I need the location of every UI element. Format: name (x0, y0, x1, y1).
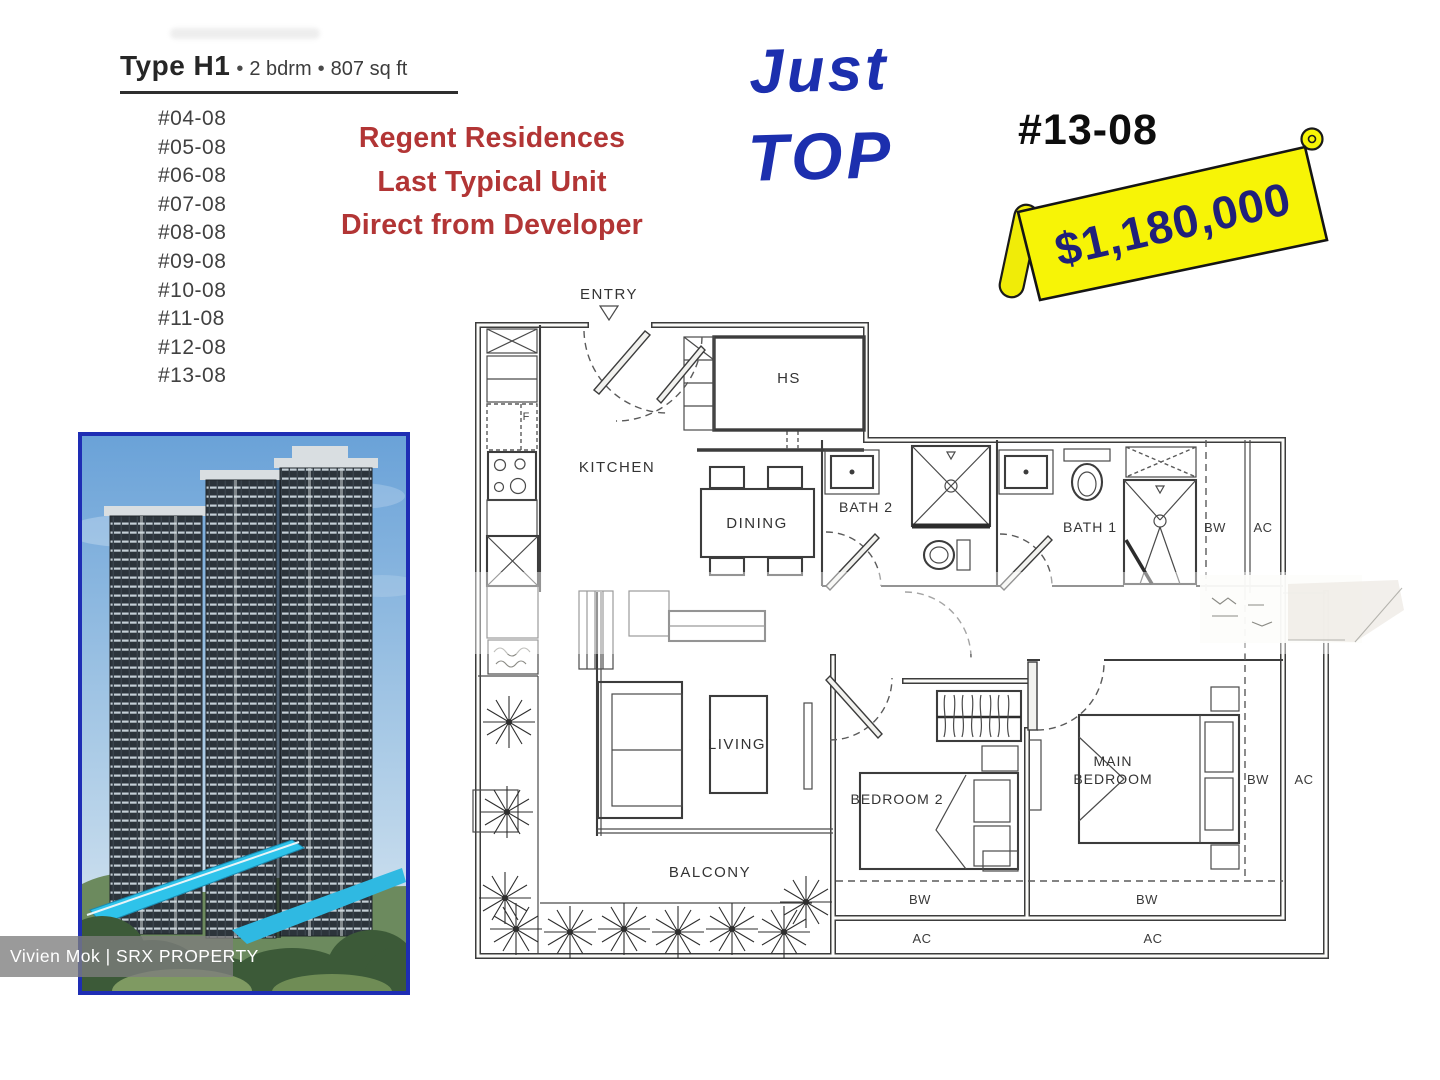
agent-watermark: Vivien Mok | SRX PROPERTY (0, 936, 233, 977)
floor-plan: ENTRY HS KITCHEN DINING BATH 2 BATH 1 BW… (468, 278, 1420, 1022)
label-bath1: BATH 1 (1063, 519, 1117, 535)
unit-list-item: #12-08 (158, 334, 226, 363)
unit-list-item: #09-08 (158, 248, 226, 277)
label-fridge: F (523, 411, 530, 423)
bullet-separator: • (318, 58, 325, 80)
promo-line-unit: Last Typical Unit (318, 161, 666, 205)
living-furniture (598, 682, 812, 818)
unit-number-list: #04-08 #05-08 #06-08 #07-08 #08-08 #09-0… (158, 105, 226, 391)
label-ac: AC (1143, 931, 1162, 946)
handwritten-just: Just (720, 25, 918, 116)
tower-left (104, 506, 208, 934)
tower-right (274, 446, 378, 938)
unit-list-item: #05-08 (158, 134, 226, 163)
label-living: LIVING (708, 736, 766, 753)
bedroom-count: 2 bdrm (249, 58, 311, 80)
handwritten-note: Just TOP (720, 25, 920, 200)
promo-line-developer: Direct from Developer (318, 204, 666, 248)
label-balcony: BALCONY (669, 864, 751, 881)
balcony-planting (473, 696, 832, 958)
building-photo (78, 432, 410, 995)
unit-list-item: #11-08 (158, 305, 226, 334)
label-bw: BW (1204, 520, 1226, 535)
label-ac: AC (912, 931, 931, 946)
promo-text: Regent Residences Last Typical Unit Dire… (318, 117, 666, 248)
label-dining: DINING (726, 515, 788, 532)
condo-towers-illustration (82, 436, 406, 991)
label-bedroom2: BEDROOM 2 (850, 791, 943, 807)
shower-stall (1124, 480, 1196, 584)
label-ac: AC (1294, 772, 1313, 787)
main-bedroom-furniture (1028, 662, 1239, 869)
floor-area: 807 sq ft (331, 58, 408, 80)
label-ac: AC (1253, 520, 1272, 535)
scan-artifact (170, 28, 320, 39)
unit-list-item: #06-08 (158, 162, 226, 191)
unit-list-item: #04-08 (158, 105, 226, 134)
bath2-fixtures (825, 446, 990, 590)
label-main-bedroom-1: MAIN (1094, 753, 1133, 769)
entry-arrow-icon (600, 306, 618, 320)
unit-list-item: #07-08 (158, 191, 226, 220)
label-entry: ENTRY (580, 286, 638, 303)
bullet-separator: • (236, 58, 243, 80)
label-bath2: BATH 2 (839, 499, 893, 515)
bed (860, 773, 1018, 869)
unit-list-item: #13-08 (158, 362, 226, 391)
label-kitchen: KITCHEN (579, 459, 655, 476)
unit-list-item: #08-08 (158, 219, 226, 248)
household-shelter (684, 337, 864, 430)
entry-doors (584, 331, 705, 421)
label-bw: BW (909, 892, 931, 907)
cooking-hob (488, 452, 536, 500)
label-bw: BW (1247, 772, 1269, 787)
flyer-canvas: Type H1•2 bdrm•807 sq ft #04-08 #05-08 #… (0, 0, 1440, 1080)
label-hs: HS (777, 370, 801, 387)
promo-line-project: Regent Residences (318, 117, 666, 161)
unit-type-label: Type H1 (120, 50, 230, 81)
unit-list-item: #10-08 (158, 277, 226, 306)
label-main-bedroom-2: BEDROOM (1073, 771, 1152, 787)
label-bw: BW (1136, 892, 1158, 907)
bedroom2-furniture (826, 676, 1021, 871)
scan-wash-overlay (470, 572, 1404, 654)
handwritten-top: TOP (722, 111, 920, 200)
type-header: Type H1•2 bdrm•807 sq ft (120, 50, 458, 94)
